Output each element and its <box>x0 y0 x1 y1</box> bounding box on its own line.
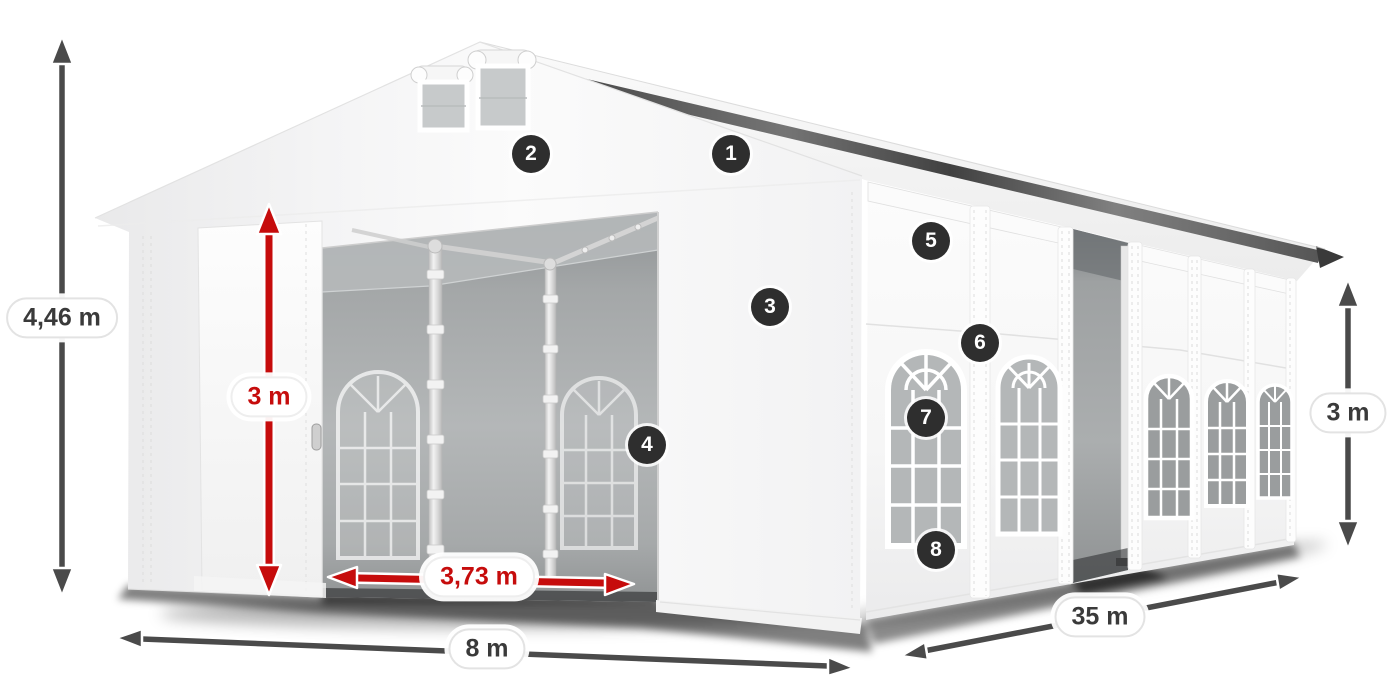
callout-badge-2[interactable]: 2 <box>512 135 550 173</box>
side-opening <box>1073 229 1132 583</box>
inner-window-print <box>562 378 636 548</box>
vent-window <box>411 66 473 130</box>
length-label: 35 m <box>1055 596 1146 637</box>
tent-dimension-diagram: 4,46 m 3 m 3,73 m 8 m 35 m 3 m 1 2 3 4 5… <box>0 0 1400 700</box>
total-height-label: 4,46 m <box>6 297 118 338</box>
callout-badge-5[interactable]: 5 <box>912 222 950 260</box>
entrance-height-label: 3 m <box>230 376 307 417</box>
arched-window <box>1258 385 1292 498</box>
side-height-label: 3 m <box>1309 392 1386 433</box>
entrance-interior <box>322 212 658 602</box>
tent-illustration <box>0 0 1400 700</box>
side-pole <box>1121 246 1128 564</box>
entrance-width-label: 3,73 m <box>423 556 535 597</box>
inner-window-print <box>338 372 418 558</box>
arched-window <box>998 357 1060 534</box>
width-label: 8 m <box>448 628 525 669</box>
callout-badge-8[interactable]: 8 <box>917 531 955 569</box>
arched-window <box>888 351 964 546</box>
callout-badge-4[interactable]: 4 <box>628 426 666 464</box>
vent-window <box>468 50 536 128</box>
door-handle[interactable] <box>312 424 321 450</box>
callout-badge-1[interactable]: 1 <box>712 135 750 173</box>
callout-badge-6[interactable]: 6 <box>961 324 999 362</box>
callout-badge-7[interactable]: 7 <box>907 399 945 437</box>
callout-badge-3[interactable]: 3 <box>751 288 789 326</box>
arched-window <box>1146 376 1192 518</box>
arched-window <box>1206 381 1248 506</box>
